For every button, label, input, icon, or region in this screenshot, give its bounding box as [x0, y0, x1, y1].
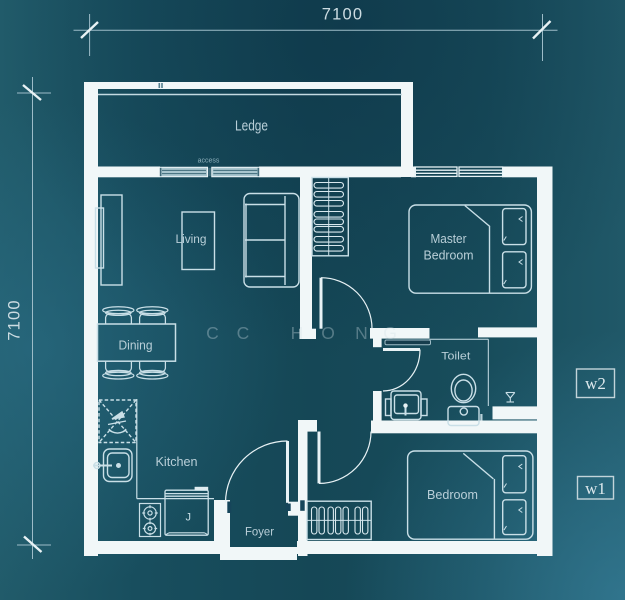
- svg-text:Master: Master: [431, 232, 467, 246]
- svg-text:Ledge: Ledge: [235, 118, 268, 135]
- svg-text:N: N: [355, 323, 368, 343]
- svg-text:C: C: [206, 323, 219, 343]
- svg-text:7100: 7100: [322, 6, 364, 24]
- svg-text:Living: Living: [176, 234, 207, 246]
- svg-text:Bedroom: Bedroom: [424, 249, 474, 263]
- svg-text:H: H: [291, 323, 304, 343]
- svg-text:C: C: [237, 323, 250, 343]
- svg-text:O: O: [321, 323, 335, 343]
- svg-text:J: J: [186, 512, 192, 524]
- svg-text:7100: 7100: [6, 299, 24, 341]
- svg-text:G: G: [383, 323, 397, 343]
- svg-text:Dining: Dining: [119, 339, 153, 353]
- svg-text:Kitchen: Kitchen: [156, 455, 198, 469]
- svg-text:w2: w2: [585, 374, 606, 393]
- svg-text:Bedroom: Bedroom: [427, 488, 478, 502]
- svg-text:access: access: [198, 158, 220, 165]
- svg-text:w1: w1: [585, 479, 606, 498]
- svg-text:Toilet: Toilet: [441, 351, 470, 363]
- svg-text:Foyer: Foyer: [245, 527, 274, 539]
